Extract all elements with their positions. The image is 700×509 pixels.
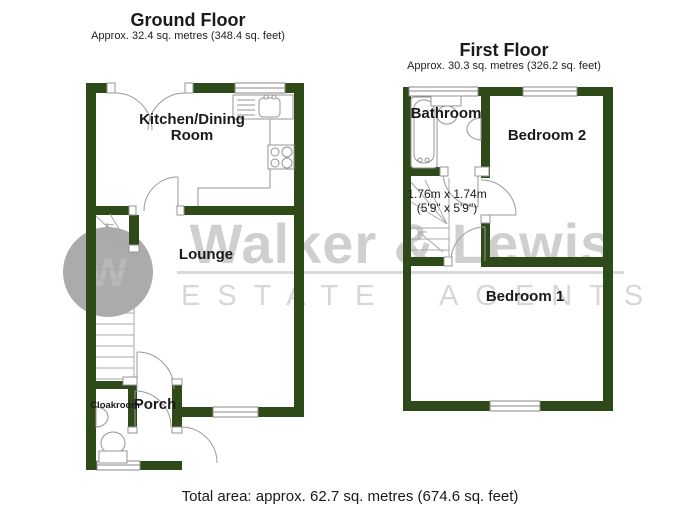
first-floor-doors — [443, 172, 516, 261]
ground-floor-stairs — [96, 214, 134, 385]
landing-dimensions-metric: 1.76m x 1.74m — [397, 187, 497, 201]
first-floor-title: First Floor — [404, 40, 604, 61]
room-label-bathroom: Bathroom — [406, 106, 486, 122]
landing-dimensions-imperial: (5'9" x 5'9") — [397, 201, 497, 215]
first-floor-area: Approx. 30.3 sq. metres (326.2 sq. feet) — [379, 60, 629, 72]
sink-bowl — [259, 98, 280, 117]
room-label-kitchen: Kitchen/Dining Room — [132, 112, 252, 144]
total-area-label: Total area: approx. 62.7 sq. metres (674… — [100, 488, 600, 505]
front-door-arc — [181, 427, 217, 463]
room-label-bedroom1: Bedroom 1 — [475, 289, 575, 305]
toilet-cistern-icon — [99, 451, 127, 463]
cloakroom-fixtures — [96, 407, 127, 463]
ground-floor-title: Ground Floor — [88, 10, 288, 31]
landing-dimensions: 1.76m x 1.74m (5'9" x 5'9") — [397, 187, 497, 216]
room-label-lounge: Lounge — [156, 247, 256, 263]
floorplan-linework — [0, 0, 700, 509]
lounge-porch-door-arc — [137, 352, 174, 389]
bedroom1-door-arc — [451, 227, 485, 261]
floorplan-page: W Walker & Lewis ESTATE AGENTS — [0, 0, 700, 509]
ground-floor-area: Approx. 32.4 sq. metres (348.4 sq. feet) — [63, 30, 313, 42]
room-label-bedroom2: Bedroom 2 — [497, 128, 597, 144]
kitchen-door-arc — [144, 177, 178, 211]
room-label-porch: Porch — [125, 397, 185, 413]
